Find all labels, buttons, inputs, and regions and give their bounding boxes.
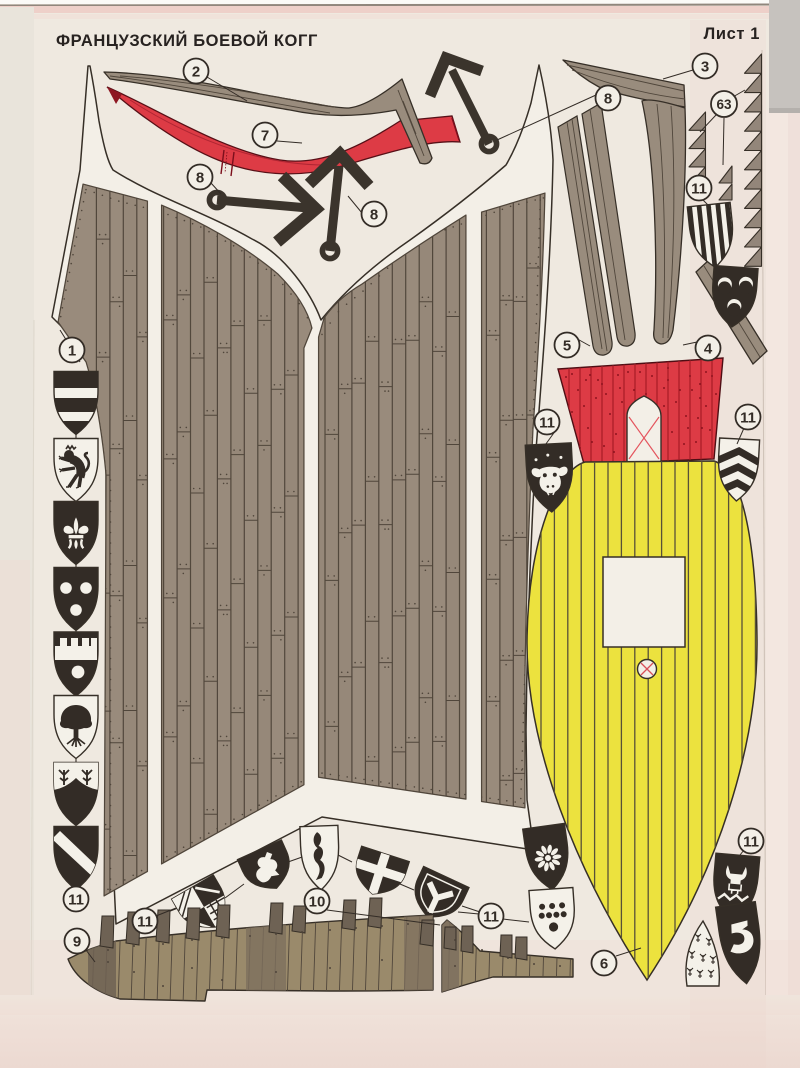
svg-text:11: 11 [740, 409, 756, 426]
svg-text:4: 4 [704, 340, 713, 357]
svg-text:11: 11 [137, 913, 153, 930]
svg-text:5: 5 [563, 337, 571, 354]
svg-text:7: 7 [261, 127, 269, 144]
svg-text:8: 8 [370, 206, 378, 223]
svg-text:9: 9 [73, 933, 81, 950]
svg-text:3: 3 [701, 58, 709, 75]
svg-text:11: 11 [743, 833, 759, 850]
svg-text:11: 11 [68, 891, 84, 908]
svg-text:8: 8 [196, 169, 204, 186]
svg-text:11: 11 [691, 180, 707, 197]
svg-text:ФРАНЦУЗСКИЙ БОЕВОЙ КОГГ: ФРАНЦУЗСКИЙ БОЕВОЙ КОГГ [56, 31, 318, 50]
svg-text:10: 10 [309, 893, 326, 910]
svg-text:2: 2 [192, 63, 200, 80]
svg-text:11: 11 [483, 908, 499, 925]
svg-text:6: 6 [600, 955, 608, 972]
svg-text:63: 63 [716, 97, 732, 112]
svg-text:Лист 1: Лист 1 [704, 25, 760, 43]
svg-text:8: 8 [604, 90, 612, 107]
svg-text:11: 11 [539, 414, 555, 431]
svg-text:1: 1 [68, 342, 76, 359]
